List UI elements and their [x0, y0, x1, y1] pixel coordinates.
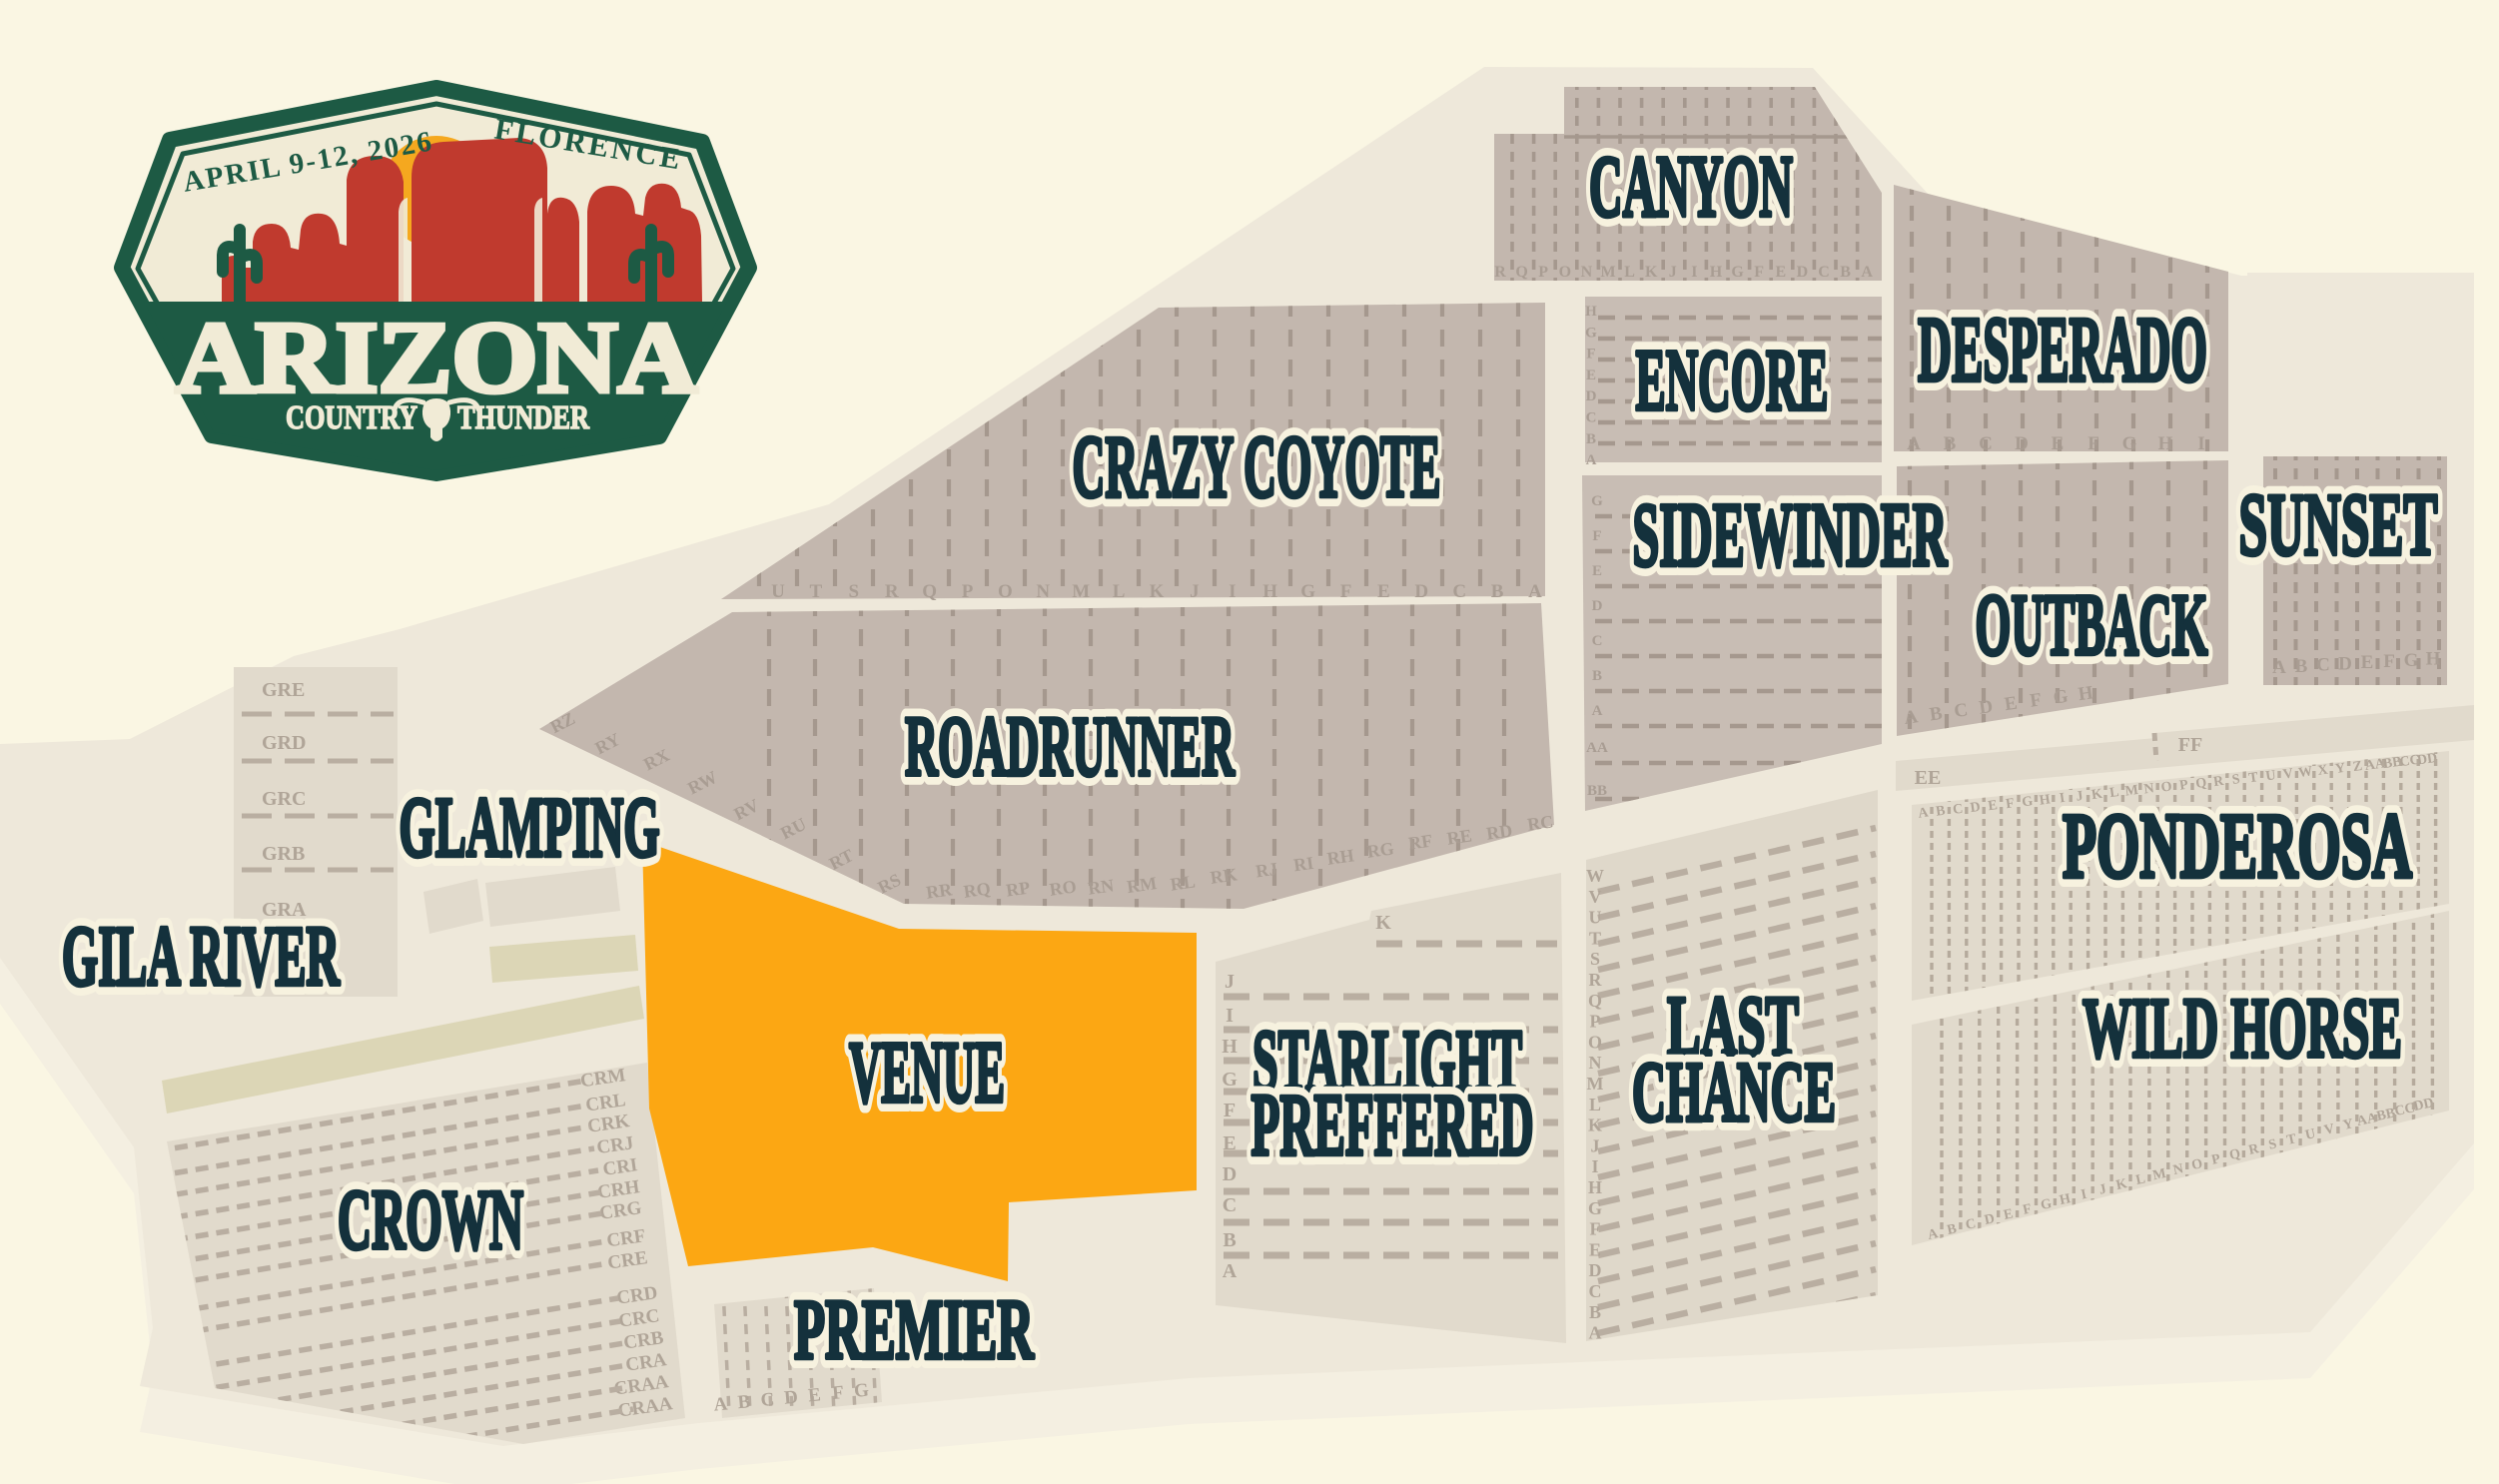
svg-text:PREFFERED: PREFFERED: [1251, 1077, 1534, 1174]
svg-text:M: M: [1072, 581, 1090, 602]
svg-text:I: I: [1226, 1005, 1234, 1027]
svg-text:PONDEROSA: PONDEROSA: [2063, 794, 2412, 897]
svg-text:C: C: [1223, 1194, 1237, 1216]
svg-text:PREMIER: PREMIER: [794, 1282, 1035, 1377]
svg-text:B: B: [1223, 1229, 1236, 1251]
svg-text:RP: RP: [1005, 877, 1032, 900]
svg-text:Q: Q: [922, 581, 937, 602]
svg-text:O: O: [998, 581, 1013, 602]
svg-text:J: J: [1225, 971, 1235, 993]
svg-text:G: G: [2122, 433, 2137, 454]
svg-text:RH: RH: [1325, 845, 1355, 869]
svg-text:D: D: [2015, 433, 2029, 454]
svg-text:OUTBACK: OUTBACK: [1976, 577, 2208, 674]
svg-text:C: C: [1979, 433, 1993, 454]
svg-text:A: A: [1223, 1260, 1238, 1282]
svg-text:E: E: [1775, 264, 1786, 281]
svg-text:W: W: [2297, 764, 2313, 781]
svg-text:D: D: [2338, 653, 2352, 674]
svg-text:D: D: [1592, 598, 1603, 614]
svg-text:C: C: [1452, 581, 1466, 602]
svg-text:F: F: [2087, 433, 2099, 454]
svg-text:J: J: [1591, 1135, 1600, 1155]
svg-text:Q: Q: [1588, 991, 1602, 1011]
svg-text:U: U: [771, 581, 785, 602]
svg-text:C: C: [1586, 410, 1597, 426]
svg-text:H: H: [1262, 581, 1277, 602]
svg-text:RF: RF: [1407, 830, 1434, 853]
svg-text:B: B: [1944, 433, 1957, 454]
svg-text:I: I: [1691, 264, 1697, 281]
svg-text:K: K: [1150, 581, 1165, 602]
svg-text:Q: Q: [1515, 264, 1527, 281]
svg-text:GRE: GRE: [262, 679, 305, 701]
svg-text:RJ: RJ: [1254, 859, 1279, 882]
svg-text:L: L: [1589, 1095, 1601, 1114]
svg-text:GILA RIVER: GILA RIVER: [62, 909, 341, 1004]
svg-text:M: M: [1600, 264, 1615, 281]
svg-text:WILD HORSE: WILD HORSE: [2082, 981, 2402, 1076]
svg-text:B: B: [737, 1391, 752, 1413]
svg-text:B: B: [1592, 668, 1602, 684]
svg-text:G: G: [853, 1380, 870, 1402]
svg-text:F: F: [1592, 528, 1601, 544]
svg-text:RQ: RQ: [962, 878, 992, 902]
svg-text:G: G: [1588, 1198, 1602, 1218]
svg-text:D: D: [783, 1387, 799, 1409]
svg-text:H: H: [1222, 1036, 1238, 1058]
svg-text:GRB: GRB: [262, 843, 305, 865]
svg-text:F: F: [1586, 347, 1595, 363]
svg-text:CHANCE: CHANCE: [1632, 1045, 1836, 1139]
svg-text:G: G: [2021, 794, 2034, 810]
svg-text:F: F: [1590, 1219, 1601, 1239]
svg-text:C: C: [1589, 1281, 1602, 1301]
svg-text:E: E: [807, 1384, 821, 1406]
svg-text:B: B: [2295, 656, 2308, 677]
svg-text:C: C: [2316, 655, 2330, 676]
svg-text:EE: EE: [1915, 767, 1942, 789]
svg-text:R: R: [885, 581, 899, 602]
svg-text:X: X: [2317, 763, 2329, 779]
svg-text:RD: RD: [1485, 820, 1514, 843]
svg-text:A: A: [2272, 657, 2286, 678]
svg-text:G: G: [1300, 581, 1315, 602]
svg-text:E: E: [2052, 433, 2065, 454]
svg-text:B: B: [1491, 581, 1504, 602]
svg-text:G: G: [1591, 493, 1603, 509]
svg-text:H: H: [2039, 792, 2052, 808]
svg-text:O: O: [1588, 1032, 1602, 1052]
svg-text:B: B: [1586, 431, 1596, 447]
svg-text:D: D: [1970, 800, 1982, 816]
svg-text:O: O: [1559, 264, 1571, 281]
svg-text:H: H: [1585, 304, 1597, 320]
svg-text:FF: FF: [2178, 734, 2202, 756]
svg-text:G: G: [1585, 325, 1597, 341]
svg-text:C: C: [1953, 699, 1970, 722]
svg-text:N: N: [1581, 264, 1593, 281]
svg-text:C: C: [760, 1389, 776, 1411]
svg-text:D: D: [1797, 264, 1809, 281]
svg-text:A: A: [1528, 581, 1542, 602]
svg-text:ARIZONA: ARIZONA: [176, 302, 698, 414]
svg-text:DESPERADO: DESPERADO: [1918, 298, 2207, 400]
svg-text:CRAZY COYOTE: CRAZY COYOTE: [1073, 418, 1441, 516]
svg-text:K: K: [1645, 264, 1658, 281]
svg-text:W: W: [1586, 866, 1604, 886]
svg-text:AA: AA: [1586, 740, 1608, 756]
svg-text:K: K: [1375, 912, 1391, 934]
svg-text:P: P: [1538, 264, 1548, 281]
svg-text:SIDEWINDER: SIDEWINDER: [1633, 485, 1949, 585]
svg-text:RC: RC: [1526, 811, 1555, 834]
svg-text:C: C: [1818, 264, 1830, 281]
svg-text:R: R: [1494, 264, 1506, 281]
svg-text:RN: RN: [1087, 875, 1116, 898]
svg-text:H: H: [2426, 649, 2441, 670]
svg-text:I: I: [2197, 433, 2204, 454]
svg-text:E: E: [1589, 1239, 1601, 1259]
svg-text:S: S: [1590, 949, 1600, 969]
svg-text:RM: RM: [1126, 873, 1158, 897]
svg-text:RR: RR: [925, 879, 955, 903]
svg-text:B: B: [1589, 1302, 1601, 1322]
svg-text:R: R: [1589, 970, 1603, 990]
svg-text:H: H: [1588, 1177, 1602, 1197]
svg-text:ENCORE: ENCORE: [1636, 333, 1829, 429]
svg-text:RE: RE: [1445, 825, 1473, 848]
svg-text:D: D: [1586, 388, 1597, 404]
svg-text:K: K: [1588, 1115, 1602, 1135]
svg-text:S: S: [849, 581, 860, 602]
svg-text:L: L: [1624, 264, 1635, 281]
svg-text:F: F: [1340, 581, 1352, 602]
svg-text:T: T: [810, 581, 823, 602]
svg-text:E: E: [1223, 1132, 1236, 1154]
svg-text:V: V: [1589, 887, 1602, 907]
svg-text:RO: RO: [1048, 876, 1078, 900]
svg-text:C: C: [1952, 802, 1964, 818]
svg-text:U: U: [1589, 908, 1602, 928]
svg-text:E: E: [1377, 581, 1390, 602]
svg-text:SUNSET: SUNSET: [2239, 476, 2438, 574]
svg-text:G: G: [2404, 650, 2419, 671]
svg-text:V: V: [2282, 766, 2294, 782]
svg-text:A: A: [1907, 433, 1921, 454]
svg-text:A: A: [1589, 1323, 1602, 1343]
svg-text:RI: RI: [1292, 853, 1315, 876]
svg-text:H: H: [2077, 682, 2094, 705]
svg-text:A: A: [1592, 703, 1603, 719]
svg-text:G: G: [2052, 686, 2070, 709]
svg-text:A: A: [713, 1393, 729, 1415]
svg-text:GLAMPING: GLAMPING: [400, 780, 660, 875]
svg-text:D: D: [1414, 581, 1428, 602]
svg-text:H: H: [1710, 264, 1723, 281]
svg-text:E: E: [1586, 368, 1596, 383]
svg-text:U: U: [2264, 768, 2276, 784]
svg-text:A: A: [1586, 452, 1597, 468]
svg-text:B: B: [1840, 264, 1851, 281]
svg-text:ROADRUNNER: ROADRUNNER: [905, 699, 1236, 794]
svg-text:RL: RL: [1169, 871, 1197, 894]
svg-text:I: I: [1591, 1156, 1598, 1176]
svg-text:Y: Y: [2334, 761, 2346, 777]
svg-text:E: E: [1592, 563, 1602, 579]
svg-text:G: G: [1222, 1069, 1238, 1091]
svg-text:GRD: GRD: [262, 732, 306, 754]
svg-text:H: H: [2158, 433, 2173, 454]
svg-text:GRC: GRC: [262, 788, 306, 810]
svg-text:F: F: [1754, 264, 1764, 281]
svg-text:CANYON: CANYON: [1589, 139, 1793, 236]
svg-text:A: A: [1861, 264, 1873, 281]
svg-text:RG: RG: [1365, 838, 1395, 862]
svg-text:BB: BB: [1587, 783, 1607, 799]
svg-text:C: C: [1592, 633, 1603, 649]
svg-text:J: J: [1669, 264, 1677, 281]
svg-text:CROWN: CROWN: [338, 1172, 523, 1267]
svg-text:D: D: [1223, 1163, 1237, 1185]
svg-text:M: M: [1587, 1074, 1604, 1094]
svg-text:E: E: [2361, 652, 2374, 673]
svg-text:J: J: [1190, 581, 1200, 602]
svg-text:N: N: [1036, 581, 1050, 602]
svg-text:P: P: [1590, 1012, 1601, 1032]
svg-text:L: L: [1113, 581, 1126, 602]
svg-text:VENUE: VENUE: [849, 1025, 1005, 1121]
svg-text:F: F: [2383, 651, 2395, 672]
svg-text:F: F: [1224, 1100, 1236, 1121]
svg-text:G: G: [1731, 264, 1744, 281]
svg-text:Q: Q: [2194, 776, 2207, 792]
svg-text:I: I: [1229, 581, 1236, 602]
svg-text:T: T: [1589, 928, 1601, 948]
svg-text:D: D: [1589, 1260, 1602, 1280]
svg-text:RK: RK: [1209, 864, 1239, 888]
svg-text:F: F: [831, 1382, 844, 1404]
svg-text:N: N: [1589, 1053, 1602, 1073]
svg-text:D: D: [1978, 696, 1995, 719]
svg-text:P: P: [962, 581, 974, 602]
